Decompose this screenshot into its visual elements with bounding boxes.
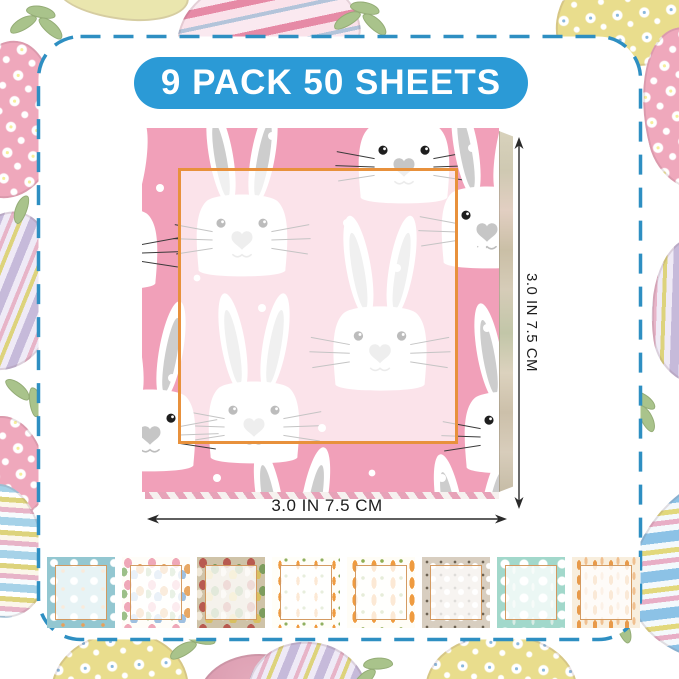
thumbnail-egg-pad-tan [197, 557, 265, 628]
easter-egg-purple-left [0, 200, 73, 380]
leaf-decoration [592, 183, 651, 252]
pack-count-label: 9 PACK 50 SHEETS [161, 63, 501, 103]
thumbnail-bunny-pad-blue [47, 557, 115, 628]
thumbnail-writing-area [505, 565, 557, 620]
main-pad-face [142, 128, 499, 492]
leaf-decoration [168, 632, 228, 666]
easter-egg-pale-top-left [55, 0, 194, 27]
main-pad [142, 128, 514, 500]
thumbnail-writing-area [355, 565, 407, 620]
design-thumbnails [47, 557, 640, 628]
thumbnail-writing-area [280, 565, 332, 620]
product-image: 9 PACK 50 SHEETS [0, 0, 679, 679]
thumbnail-writing-area [580, 565, 632, 620]
thumbnail-carrot-pad-white [272, 557, 340, 628]
thumbnail-bunny-pad-mint [497, 557, 565, 628]
leaf-decoration [332, 2, 392, 36]
writing-area [178, 168, 458, 444]
easter-egg-yellow-bottom-center [424, 630, 580, 679]
height-dimension-label: 3.0 IN 7.5 CM [523, 136, 540, 510]
easter-egg-purple-right [640, 230, 679, 395]
thumbnail-writing-area [205, 565, 257, 620]
thumbnail-writing-area [430, 565, 482, 620]
thumbnail-writing-area [130, 565, 182, 620]
leaf-decoration [602, 383, 670, 435]
thumbnail-dot-pad-tan [422, 557, 490, 628]
thumbnail-writing-area [55, 565, 107, 620]
thumbnail-egg-pad-white [122, 557, 190, 628]
width-arrow-icon [146, 512, 508, 526]
leaf-decoration [8, 6, 68, 40]
pack-count-banner: 9 PACK 50 SHEETS [134, 57, 528, 109]
leaf-decoration [345, 651, 412, 679]
easter-egg-rainbow-left-bottom [0, 481, 51, 621]
thumbnail-carrot-pad-diagonal [347, 557, 415, 628]
thumbnail-carrot-pad-cream [572, 557, 640, 628]
